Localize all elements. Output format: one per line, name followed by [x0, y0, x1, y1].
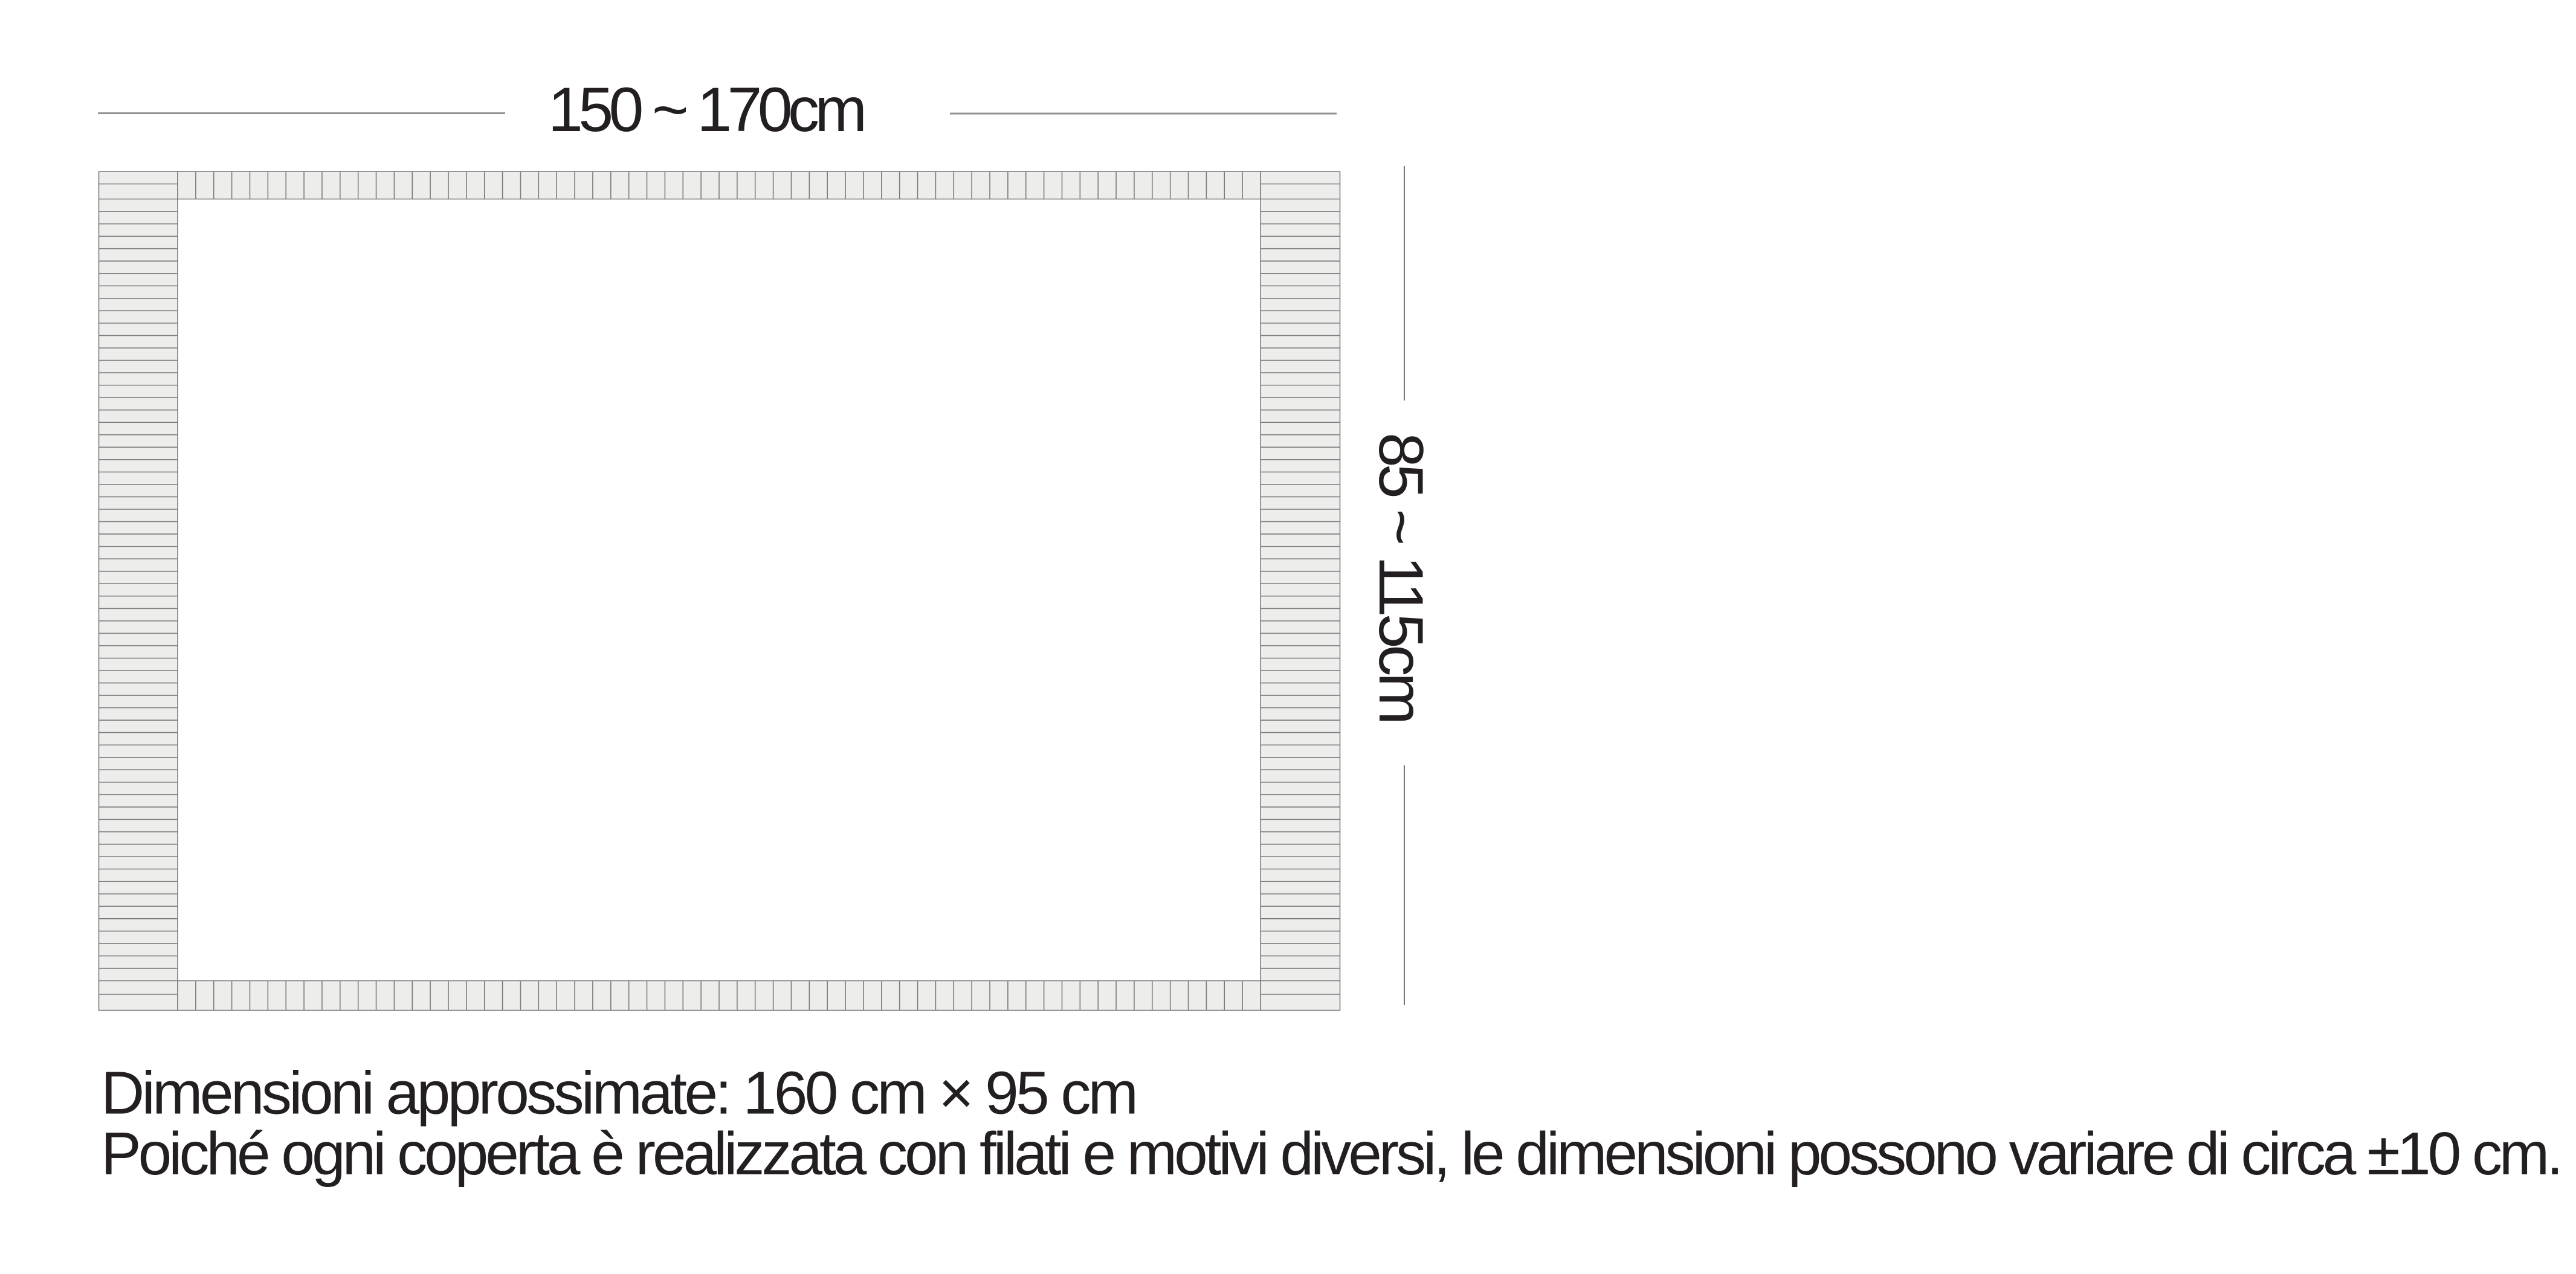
svg-text:Dimensioni approssimate: 160 c: Dimensioni approssimate: 160 cm × 95 cm: [101, 1060, 1138, 1127]
svg-text:85 ~ 115cm: 85 ~ 115cm: [1366, 433, 1436, 725]
svg-text:150 ~ 170cm: 150 ~ 170cm: [548, 75, 867, 145]
svg-text:Poiché ogni coperta è realizza: Poiché ogni coperta è realizzata con fil…: [101, 1120, 2563, 1188]
